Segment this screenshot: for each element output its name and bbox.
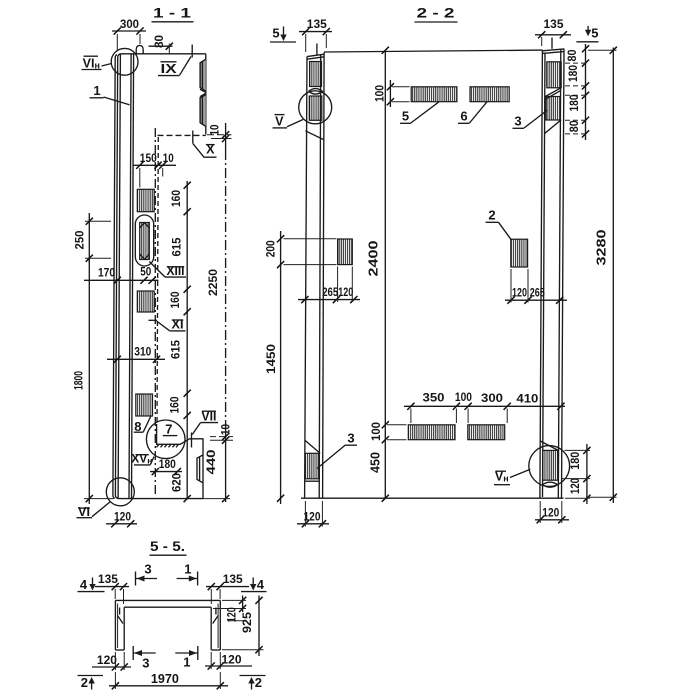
svg-text:1970: 1970 <box>151 672 179 686</box>
svg-text:2: 2 <box>255 675 262 690</box>
svg-text:2 - 2: 2 - 2 <box>417 6 455 21</box>
svg-text:250: 250 <box>73 230 87 249</box>
svg-text:1: 1 <box>184 561 191 576</box>
svg-text:V: V <box>275 114 284 128</box>
svg-text:5 - 5.: 5 - 5. <box>150 539 185 554</box>
svg-text:100: 100 <box>374 85 386 102</box>
svg-text:2: 2 <box>81 675 88 690</box>
svg-text:6: 6 <box>460 108 467 123</box>
svg-text:440: 440 <box>204 449 218 474</box>
svg-text:180: 180 <box>569 95 581 112</box>
svg-text:160: 160 <box>168 396 182 413</box>
svg-text:180: 180 <box>570 452 582 470</box>
svg-text:300: 300 <box>481 391 503 405</box>
svg-text:180: 180 <box>568 65 580 82</box>
svg-text:120: 120 <box>227 607 239 622</box>
svg-text:925: 925 <box>240 612 254 633</box>
svg-text:410: 410 <box>516 392 538 406</box>
svg-text:XIII: XIII <box>167 264 185 278</box>
svg-text:10: 10 <box>208 124 222 135</box>
svg-text:265: 265 <box>322 287 339 299</box>
svg-text:120: 120 <box>304 509 321 523</box>
svg-text:160: 160 <box>168 291 182 308</box>
svg-text:2: 2 <box>488 207 495 222</box>
svg-text:120: 120 <box>570 478 582 494</box>
svg-text:150: 150 <box>140 151 157 165</box>
svg-text:135: 135 <box>98 572 118 586</box>
svg-text:80: 80 <box>567 50 579 62</box>
svg-text:3280: 3280 <box>594 229 608 265</box>
svg-text:615: 615 <box>169 340 183 359</box>
svg-text:3: 3 <box>144 562 151 577</box>
svg-text:615: 615 <box>170 237 184 256</box>
svg-text:180: 180 <box>159 457 176 471</box>
svg-text:5: 5 <box>272 26 279 41</box>
svg-text:4: 4 <box>257 577 265 592</box>
svg-text:120: 120 <box>542 505 559 519</box>
svg-text:10: 10 <box>163 151 174 165</box>
svg-text:265: 265 <box>530 288 545 300</box>
svg-text:2400: 2400 <box>366 241 381 277</box>
svg-text:350: 350 <box>423 391 445 405</box>
svg-text:IX: IX <box>161 62 178 76</box>
svg-text:3: 3 <box>514 113 521 128</box>
svg-text:10: 10 <box>220 424 232 435</box>
svg-text:1 - 1: 1 - 1 <box>153 6 192 21</box>
svg-text:2250: 2250 <box>206 269 220 296</box>
svg-text:450: 450 <box>368 452 382 473</box>
svg-text:200: 200 <box>265 240 277 257</box>
svg-text:120: 120 <box>97 653 117 667</box>
svg-text:100: 100 <box>455 392 472 404</box>
svg-text:VI: VI <box>78 505 90 519</box>
svg-text:80: 80 <box>569 120 581 132</box>
svg-text:5: 5 <box>402 108 409 123</box>
svg-text:3: 3 <box>142 655 149 670</box>
svg-text:170: 170 <box>98 266 115 280</box>
svg-text:300: 300 <box>120 17 139 31</box>
svg-text:1: 1 <box>93 83 100 98</box>
svg-text:160: 160 <box>169 190 183 207</box>
svg-text:120: 120 <box>512 287 527 299</box>
svg-text:1450: 1450 <box>264 344 278 374</box>
svg-text:135: 135 <box>223 572 243 586</box>
svg-text:4: 4 <box>80 577 88 592</box>
svg-text:120: 120 <box>338 287 353 299</box>
svg-text:80: 80 <box>152 35 166 48</box>
svg-text:7: 7 <box>165 422 172 437</box>
svg-text:120: 120 <box>222 653 242 667</box>
svg-text:1800: 1800 <box>72 371 86 390</box>
svg-text:3: 3 <box>347 430 354 445</box>
svg-text:50: 50 <box>140 267 151 279</box>
svg-text:120: 120 <box>114 509 131 523</box>
svg-text:135: 135 <box>544 17 564 31</box>
svg-text:135: 135 <box>307 17 327 31</box>
svg-text:100: 100 <box>371 422 383 441</box>
svg-text:1: 1 <box>183 654 190 669</box>
svg-text:620: 620 <box>170 473 184 492</box>
svg-text:5: 5 <box>591 26 598 41</box>
svg-text:310: 310 <box>134 345 151 359</box>
